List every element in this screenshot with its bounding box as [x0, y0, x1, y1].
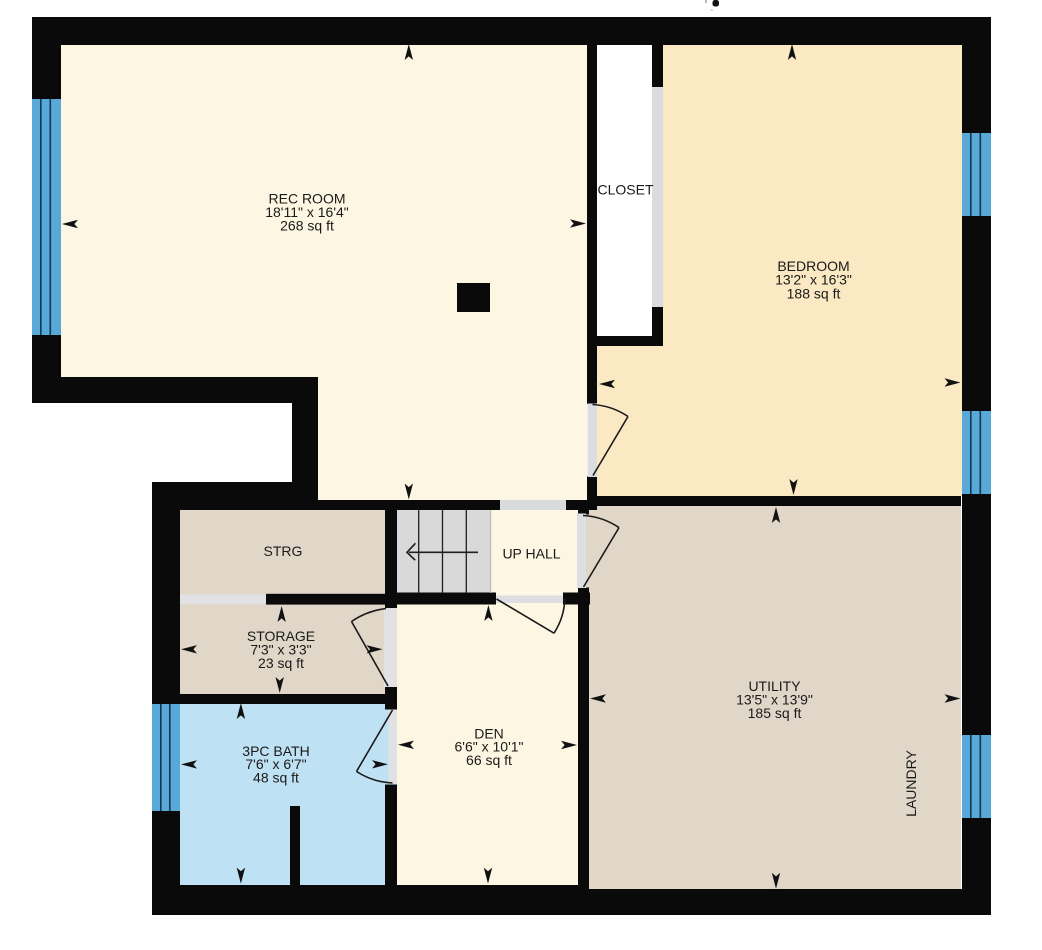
svg-text:185 sq ft: 185 sq ft — [748, 705, 802, 721]
svg-text:66 sq ft: 66 sq ft — [466, 752, 512, 768]
svg-text:268 sq ft: 268 sq ft — [280, 217, 334, 233]
svg-text:STRG: STRG — [264, 543, 303, 559]
svg-text:23 sq ft: 23 sq ft — [258, 655, 304, 671]
svg-text:UP HALL: UP HALL — [502, 546, 560, 562]
svg-text:48 sq ft: 48 sq ft — [253, 770, 299, 786]
svg-text:LAUNDRY: LAUNDRY — [903, 750, 919, 817]
svg-text:CLOSET: CLOSET — [597, 182, 653, 198]
svg-text:188 sq ft: 188 sq ft — [787, 285, 841, 301]
